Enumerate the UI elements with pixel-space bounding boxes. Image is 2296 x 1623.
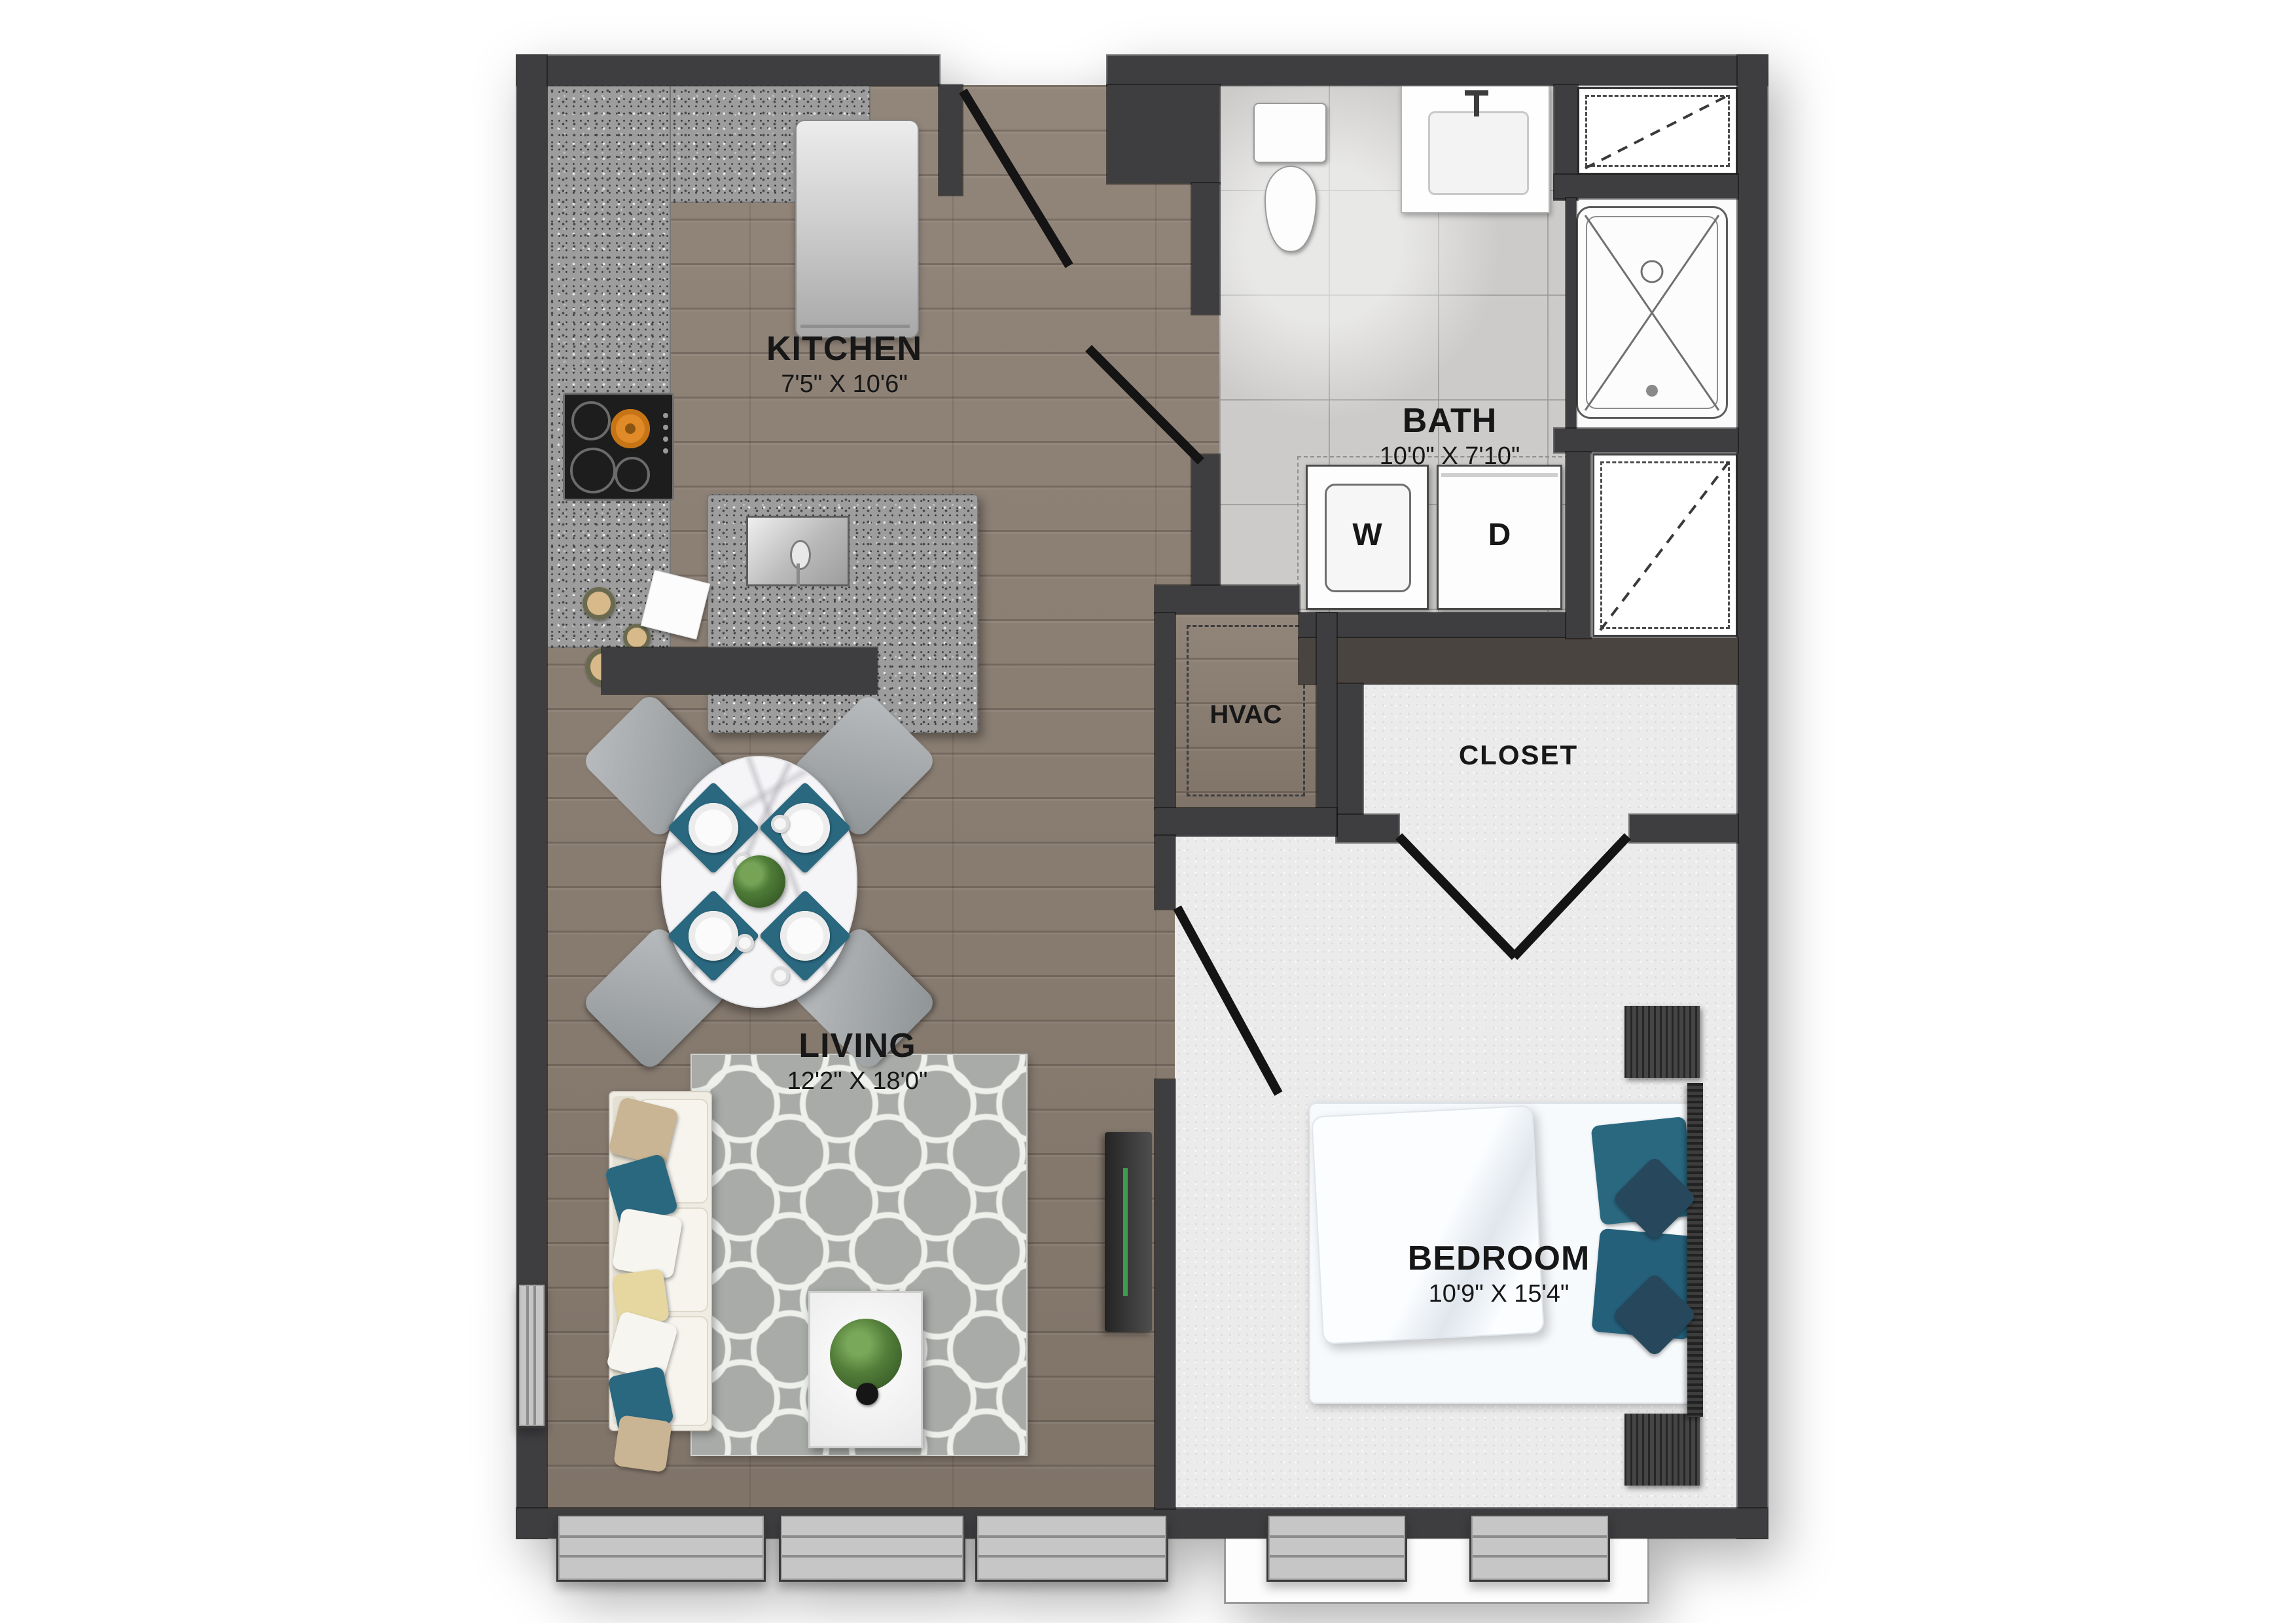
coffee-table-plant (830, 1319, 902, 1391)
vanity-faucet (1465, 90, 1488, 96)
floor-plan: KITCHEN 7'5" X 10'6" BATH 10'0" X 7'10" … (517, 56, 1767, 1538)
bedroom-dims: 10'9" X 15'4" (1348, 1281, 1649, 1308)
linen-cabinet-right (1592, 454, 1738, 637)
wall-cab2-left (1566, 452, 1590, 638)
wall-closet-jamb-left (1336, 815, 1399, 842)
window-living-left (517, 1283, 547, 1428)
nightstand (1624, 1414, 1700, 1486)
refrigerator (795, 120, 919, 338)
window-living-1 (556, 1514, 766, 1582)
wall-kitchen-knee (602, 648, 877, 694)
wall-hvac-right (1317, 613, 1336, 834)
counter-bowl (623, 624, 651, 651)
kitchen-dims: 7'5" X 10'6" (700, 371, 988, 398)
bath-name: BATH (1296, 402, 1604, 439)
living-dims: 12'2" X 18'0" (710, 1068, 1005, 1095)
wall-cab1-bottom (1554, 175, 1738, 198)
sofa-pillow-tan (613, 1415, 672, 1472)
window-bedroom-1 (1266, 1514, 1407, 1582)
linen-cabinet-top (1577, 87, 1738, 175)
wall-wd-left (1155, 586, 1299, 613)
wall-tub-left (1566, 198, 1576, 429)
bathroom-vanity (1401, 85, 1550, 213)
wall-closet-left (1336, 684, 1363, 815)
wall-hvac-bottom (1155, 808, 1336, 836)
wall-top-left (517, 56, 939, 85)
wall-closet-jamb-right (1630, 815, 1738, 842)
dryer-label: D (1437, 517, 1562, 553)
washer-label: W (1306, 517, 1429, 553)
counter-bowl (583, 587, 615, 620)
stove-cooktop (563, 393, 674, 501)
plate (689, 911, 738, 961)
plant-vase (856, 1383, 878, 1405)
headboard (1687, 1083, 1703, 1417)
wall-entry-stub (939, 85, 962, 195)
table-plant (733, 855, 785, 908)
wall-closet-back (1299, 638, 1738, 684)
window-living-3 (975, 1514, 1168, 1582)
island-sink (746, 516, 850, 586)
tv-console (1105, 1132, 1152, 1332)
wall-right (1738, 56, 1767, 1538)
wall-bath-upper (1192, 183, 1219, 314)
bathtub (1576, 206, 1728, 419)
closet-label: CLOSET (1388, 740, 1649, 771)
cup (736, 934, 754, 952)
sofa-pillow-white (612, 1208, 683, 1279)
wall-wd-bottom (1299, 613, 1568, 638)
bath-label: BATH 10'0" X 7'10" (1296, 402, 1604, 470)
plate (780, 911, 830, 961)
wall-top-right (1107, 56, 1767, 85)
wall-divider-upper (1155, 836, 1175, 909)
cup (771, 815, 789, 833)
wall-divider-lower (1155, 1080, 1175, 1508)
nightstand (1624, 1006, 1700, 1078)
wall-hvac-left (1155, 613, 1175, 808)
window-bedroom-2 (1469, 1514, 1610, 1582)
cup (771, 967, 789, 985)
wall-entry-corner (1107, 85, 1219, 183)
bath-dims: 10'0" X 7'10" (1296, 443, 1604, 470)
kitchen-name: KITCHEN (700, 330, 988, 367)
bedroom-name: BEDROOM (1348, 1240, 1649, 1277)
hvac-label: HVAC (1178, 700, 1314, 730)
living-name: LIVING (710, 1027, 1005, 1064)
kitchen-label: KITCHEN 7'5" X 10'6" (700, 330, 988, 398)
vanity-sink (1428, 111, 1529, 195)
living-label: LIVING 12'2" X 18'0" (710, 1027, 1005, 1095)
plate (689, 803, 738, 853)
tv-accent-light (1123, 1168, 1128, 1296)
toilet (1253, 103, 1327, 163)
bedroom-label: BEDROOM 10'9" X 15'4" (1348, 1240, 1649, 1308)
window-living-2 (779, 1514, 965, 1582)
wall-bath-lower (1192, 455, 1219, 596)
bed-pillow (1311, 1105, 1545, 1344)
kitchen-counter-left (547, 85, 671, 648)
